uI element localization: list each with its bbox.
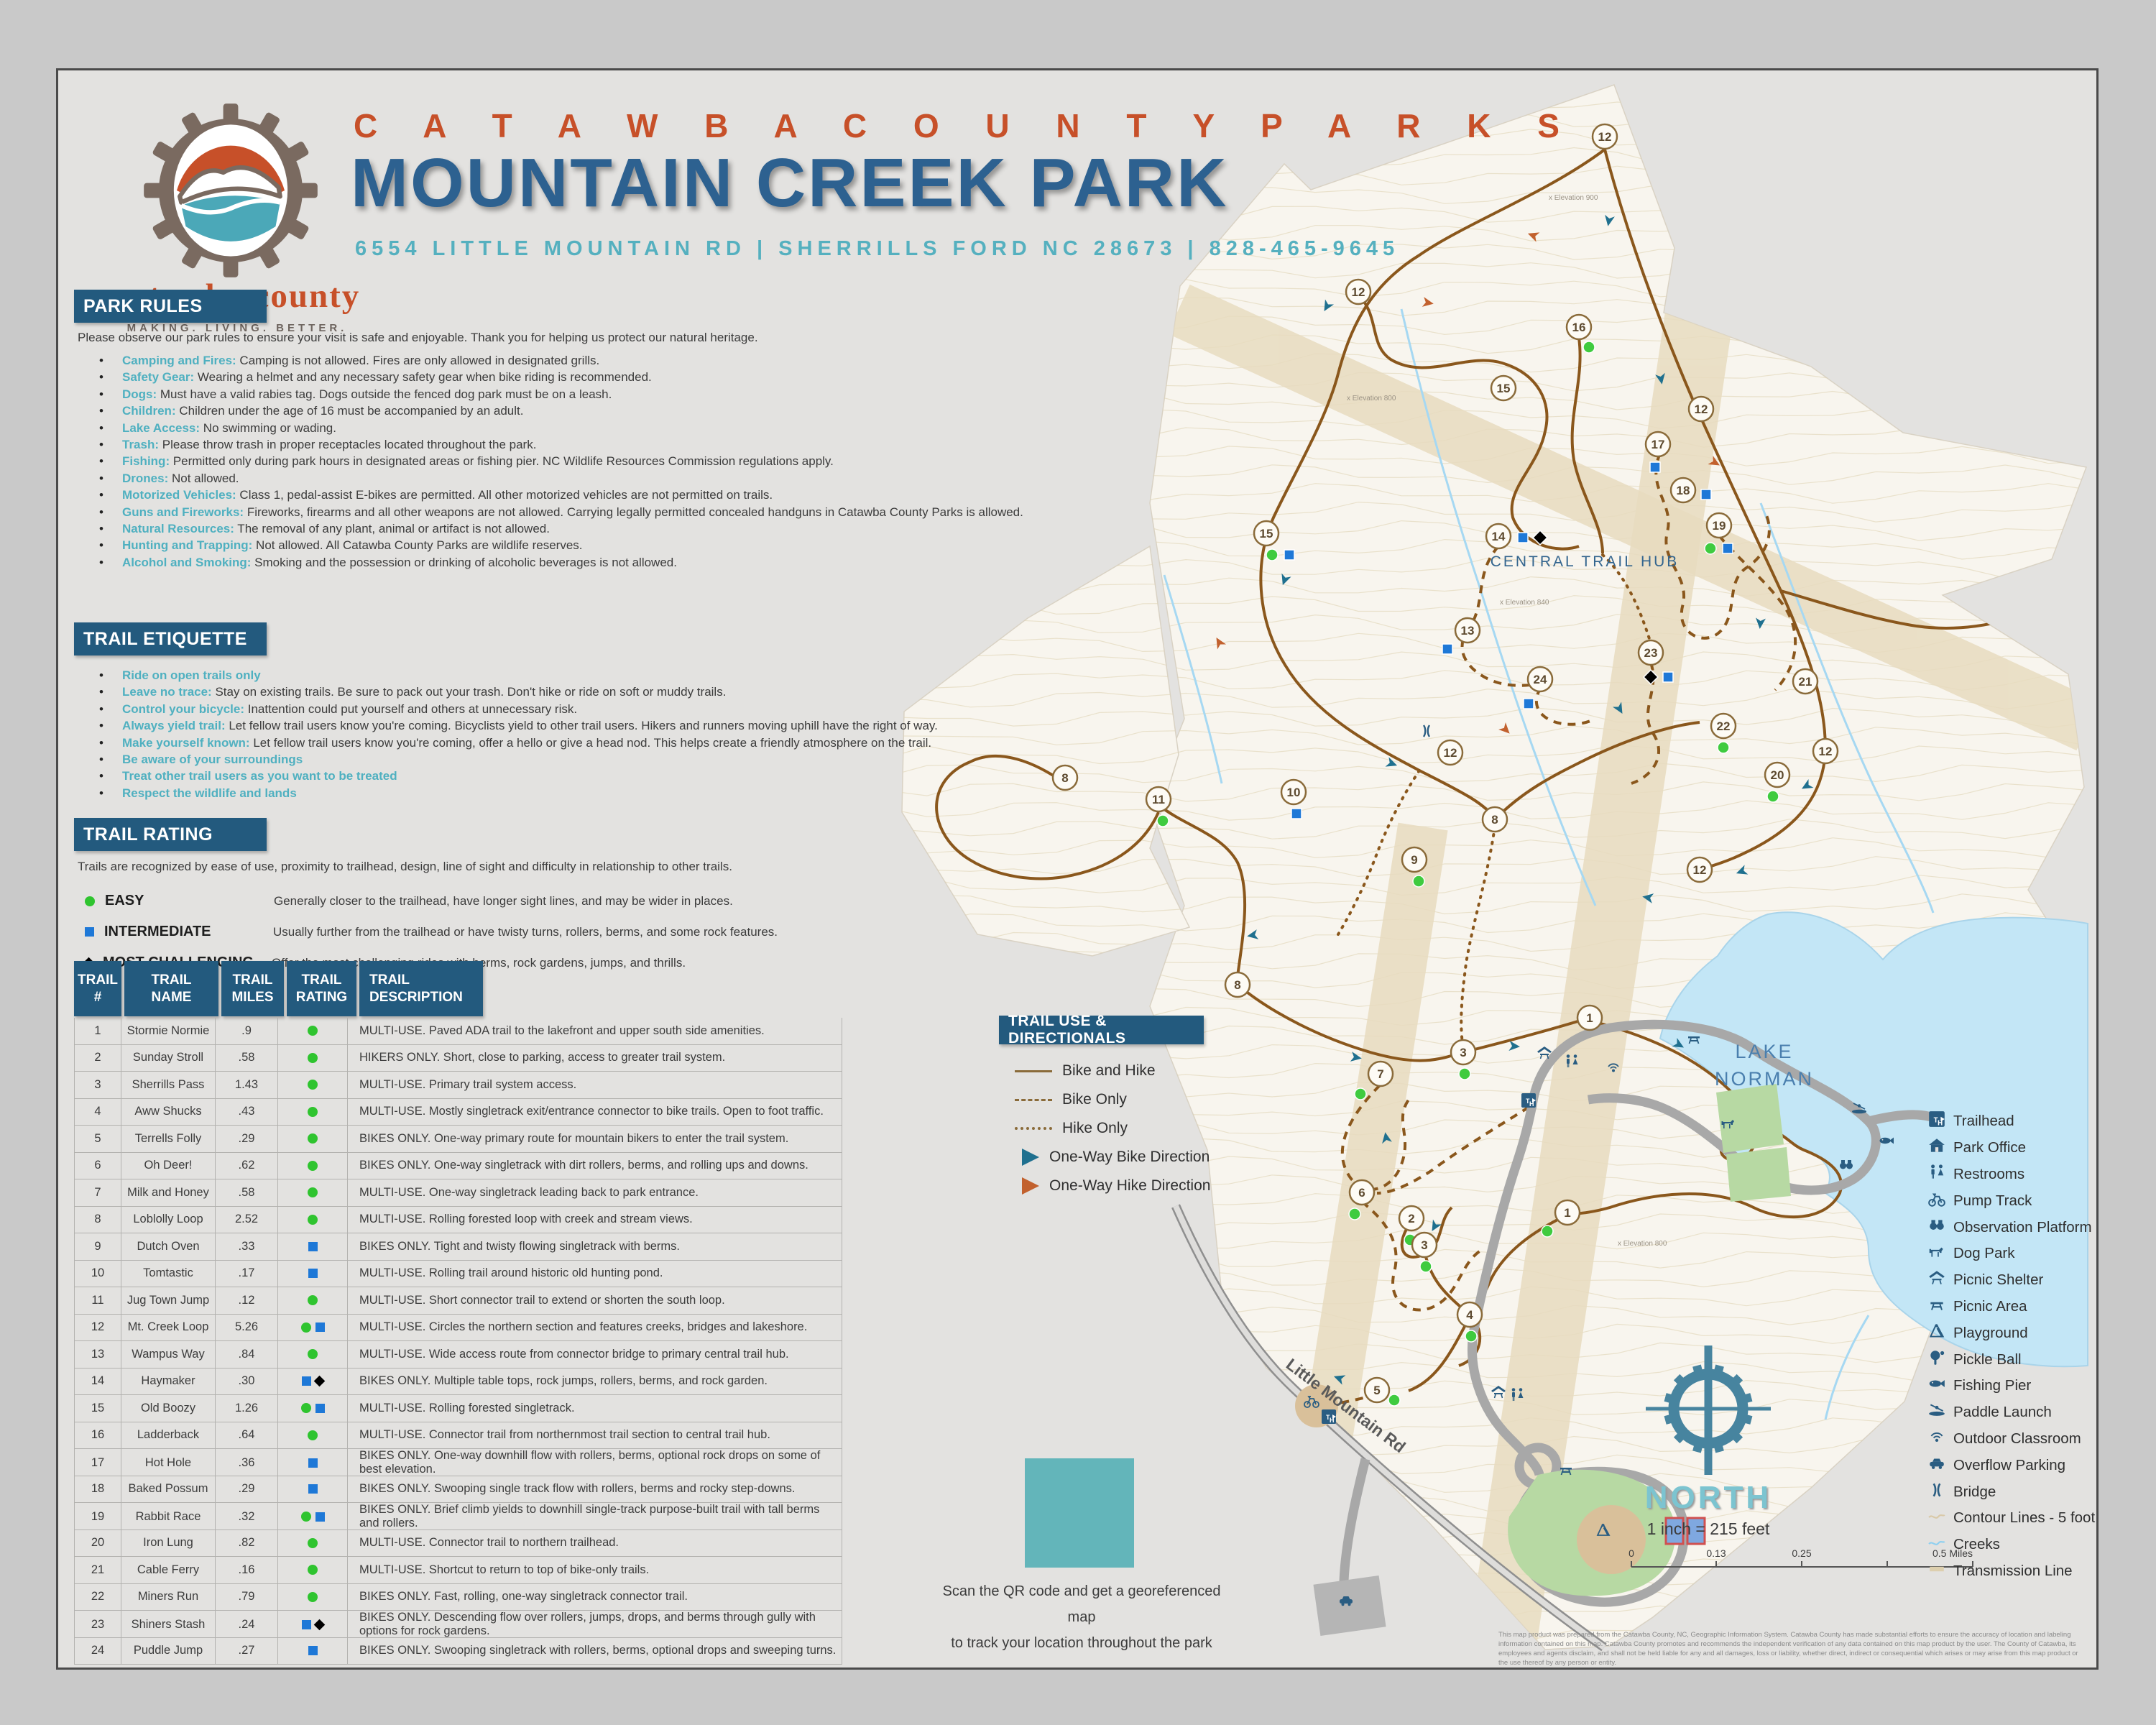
- cell-trail-description: HIKERS ONLY. Short, close to parking, ac…: [348, 1045, 842, 1072]
- trail-rating-header: TRAIL RATING: [74, 818, 267, 851]
- etiquette-item: Be aware of your surroundings: [78, 751, 983, 768]
- cell-trail-miles: .17: [216, 1261, 278, 1287]
- trail-marker-1: 1: [1577, 1006, 1602, 1030]
- poster-canvas: T HT HCENTRAL TRAIL HUBLAKENORMANLittle …: [0, 0, 2156, 1725]
- cell-trail-number: 23: [74, 1611, 121, 1638]
- cell-trail-miles: .24: [216, 1611, 278, 1638]
- cell-trail-rating: [278, 1584, 348, 1611]
- table-row: 9Dutch Oven.33BIKES ONLY. Tight and twis…: [74, 1233, 842, 1261]
- restrooms-icon: [1927, 1163, 1946, 1186]
- cell-trail-miles: .79: [216, 1584, 278, 1611]
- park-office-icon: [1927, 1136, 1946, 1159]
- dog-park-field: [1716, 1084, 1784, 1153]
- cell-trail-description: BIKES ONLY. One-way primary route for mo…: [348, 1126, 842, 1152]
- map-scale-text: 1 inch = 215 feet: [1647, 1519, 1770, 1538]
- trail-table-header: TRAIL#TRAILNAMETRAILMILESTRAILRATINGTRAI…: [74, 961, 483, 1016]
- cell-trail-miles: .84: [216, 1341, 278, 1368]
- cell-trail-description: MULTI-USE. Circles the northern section …: [348, 1315, 842, 1341]
- rule-item: Dogs: Must have a valid rabies tag. Dogs…: [78, 386, 983, 402]
- park-rules-intro: Please observe our park rules to ensure …: [78, 331, 969, 345]
- legend-label: Creeks: [1953, 1536, 2000, 1553]
- cell-trail-number: 12: [74, 1315, 121, 1341]
- table-row: 20Iron Lung.82MULTI-USE. Connector trail…: [74, 1530, 842, 1558]
- legend-label: Picnic Shelter: [1953, 1271, 2043, 1289]
- one-way-hike-arrow-icon: [1022, 1177, 1039, 1195]
- legend-item: T HTrailhead: [1927, 1108, 2100, 1135]
- cell-trail-miles: .16: [216, 1557, 278, 1583]
- cell-trail-miles: 2.52: [216, 1207, 278, 1233]
- table-row: 21Cable Ferry.16MULTI-USE. Shortcut to r…: [74, 1557, 842, 1584]
- trail-use-label: Hike Only: [1062, 1120, 1128, 1137]
- bike-only-line-icon: [1015, 1099, 1052, 1101]
- cell-trail-description: MULTI-USE. Mostly singletrack exit/entra…: [348, 1099, 842, 1126]
- cell-trail-rating: [278, 1530, 348, 1557]
- cell-trail-rating: [278, 1341, 348, 1368]
- cell-trail-number: 11: [74, 1287, 121, 1314]
- cell-trail-rating: [278, 1287, 348, 1314]
- rule-item-lead: Safety Gear:: [122, 370, 194, 384]
- svg-text:8: 8: [1061, 771, 1068, 785]
- etiquette-item: Respect the wildlife and lands: [78, 785, 983, 801]
- trail-marker-12: 12: [1593, 124, 1617, 149]
- legend-item: Transmission Line: [1927, 1558, 2100, 1585]
- legend-item: Overflow Parking: [1927, 1452, 2100, 1478]
- outdoor-classroom-icon: [1927, 1427, 1946, 1450]
- etiquette-item-text: Inattention could put yourself and other…: [244, 702, 577, 716]
- cell-trail-name: Shiners Stash: [121, 1611, 216, 1638]
- trail-marker-12: 12: [1346, 280, 1370, 304]
- etiquette-item: Always yield trail: Let fellow trail use…: [78, 717, 983, 734]
- table-header-cell: TRAILMILES: [221, 961, 284, 1016]
- cell-trail-miles: 1.26: [216, 1395, 278, 1422]
- table-row: 22Miners Run.79BIKES ONLY. Fast, rolling…: [74, 1584, 842, 1611]
- table-header-line2: RATING: [296, 989, 347, 1006]
- header-kicker: C A T A W B A C O U N T Y P A R K S: [354, 106, 1578, 145]
- svg-text:16: 16: [1572, 321, 1586, 334]
- cell-trail-description: MULTI-USE. Rolling forested singletrack.: [348, 1395, 842, 1422]
- svg-text:20: 20: [1771, 768, 1784, 782]
- svg-text:4: 4: [1466, 1308, 1473, 1322]
- cell-trail-number: 1: [74, 1018, 121, 1044]
- cell-trail-miles: .32: [216, 1503, 278, 1530]
- trail-use-item: Bike and Hike: [1015, 1057, 1252, 1085]
- legend-item: Restrooms: [1927, 1161, 2100, 1188]
- table-header-line1: TRAIL: [78, 972, 118, 989]
- trail-use-label: One-Way Bike Direction: [1049, 1149, 1210, 1166]
- trail-use-legend: Bike and HikeBike OnlyHike OnlyOne-Way B…: [1015, 1057, 1252, 1200]
- table-row: 23Shiners Stash.24BIKES ONLY. Descending…: [74, 1611, 842, 1638]
- cell-trail-description: BIKES ONLY. Descending flow over rollers…: [348, 1611, 842, 1638]
- rule-item: Hunting and Trapping: Not allowed. All C…: [78, 537, 983, 553]
- svg-text:0.25: 0.25: [1792, 1547, 1811, 1559]
- cell-trail-rating: [278, 1099, 348, 1126]
- elevation-label: x Elevation 900: [1549, 194, 1598, 202]
- svg-text:10: 10: [1287, 786, 1301, 799]
- svg-text:7: 7: [1377, 1067, 1383, 1081]
- rule-item-text: Not allowed.: [168, 471, 239, 485]
- trail-marker-12: 12: [1438, 740, 1462, 765]
- rule-item-lead: Camping and Fires:: [122, 354, 236, 367]
- cell-trail-number: 14: [74, 1368, 121, 1395]
- table-row: 13Wampus Way.84MULTI-USE. Wide access ro…: [74, 1341, 842, 1368]
- easy-dot-icon: [308, 1161, 318, 1171]
- qr-caption-line2: to track your location throughout the pa…: [951, 1635, 1212, 1651]
- trail-marker-21: 21: [1793, 669, 1818, 694]
- legend-label: Trailhead: [1953, 1113, 2014, 1130]
- svg-text:23: 23: [1644, 646, 1658, 660]
- qr-caption-line1: Scan the QR code and get a georeferenced…: [943, 1583, 1221, 1625]
- cell-trail-number: 17: [74, 1449, 121, 1476]
- cell-trail-description: MULTI-USE. Connector trail from northern…: [348, 1422, 842, 1449]
- rule-item-text: The removal of any plant, animal or arti…: [234, 522, 550, 535]
- cell-trail-description: BIKES ONLY. One-way singletrack with dir…: [348, 1153, 842, 1179]
- trail-rating-intro: Trails are recognized by ease of use, pr…: [78, 860, 969, 874]
- table-row: 1Stormie Normie.9MULTI-USE. Paved ADA tr…: [74, 1018, 842, 1045]
- rule-item: Camping and Fires: Camping is not allowe…: [78, 352, 983, 369]
- cell-trail-name: Haymaker: [121, 1368, 216, 1395]
- rule-item-text: Class 1, pedal-assist E-bikes are permit…: [236, 488, 773, 502]
- cell-trail-rating: [278, 1611, 348, 1638]
- easy-dot-icon: [308, 1565, 318, 1575]
- dog-park-icon: [1927, 1242, 1946, 1265]
- table-row: 17Hot Hole.36BIKES ONLY. One-way downhil…: [74, 1449, 842, 1476]
- cell-trail-description: MULTI-USE. Paved ADA trail to the lakefr…: [348, 1018, 842, 1044]
- svg-text:6: 6: [1358, 1186, 1365, 1200]
- table-row: 15Old Boozy1.26MULTI-USE. Rolling forest…: [74, 1395, 842, 1422]
- cell-trail-name: Mt. Creek Loop: [121, 1315, 216, 1341]
- legend-label: Paddle Launch: [1953, 1404, 2052, 1421]
- picnic-area-icon: [1927, 1295, 1946, 1318]
- overflow-parking-icon: [1927, 1454, 1946, 1477]
- cell-trail-rating: [278, 1261, 348, 1287]
- table-header-line1: TRAIL: [369, 972, 410, 989]
- hike-only-line-icon: [1015, 1127, 1052, 1130]
- svg-text:12: 12: [1598, 130, 1612, 144]
- easy-dot-icon: [308, 1592, 318, 1602]
- table-row: 5Terrells Folly.29BIKES ONLY. One-way pr…: [74, 1126, 842, 1153]
- cell-trail-miles: .58: [216, 1045, 278, 1072]
- cell-trail-number: 4: [74, 1099, 121, 1126]
- cell-trail-number: 7: [74, 1179, 121, 1206]
- qr-code: [1025, 1458, 1134, 1568]
- cell-trail-miles: .9: [216, 1018, 278, 1044]
- intermediate-square-icon: [315, 1322, 325, 1332]
- cell-trail-name: Loblolly Loop: [121, 1207, 216, 1233]
- cell-trail-name: Milk and Honey: [121, 1179, 216, 1206]
- rule-item-lead: Fishing:: [122, 454, 170, 468]
- easy-dot-icon: [308, 1538, 318, 1548]
- rule-item: Lake Access: No swimming or wading.: [78, 420, 983, 436]
- cell-trail-rating: [278, 1233, 348, 1260]
- trailhead-map-icon: T H: [1521, 1093, 1536, 1108]
- legend-item: Observation Platform: [1927, 1214, 2100, 1241]
- cell-trail-description: BIKES ONLY. Swooping single track flow w…: [348, 1476, 842, 1503]
- rule-item-text: Permitted only during park hours in desi…: [170, 454, 834, 468]
- cell-trail-miles: 1.43: [216, 1072, 278, 1098]
- easy-dot-icon: [301, 1322, 311, 1333]
- park-rules-list: Camping and Fires: Camping is not allowe…: [78, 352, 983, 571]
- rating-level-text: Usually further from the trailhead or ha…: [273, 925, 778, 939]
- intermediate-square-icon: [302, 1620, 311, 1629]
- cell-trail-number: 19: [74, 1503, 121, 1530]
- table-header-line1: TRAIL: [152, 972, 192, 989]
- etiquette-item-lead: Control your bicycle:: [122, 702, 244, 716]
- cell-trail-name: Puddle Jump: [121, 1638, 216, 1665]
- etiquette-item-lead: Respect the wildlife and lands: [122, 786, 297, 800]
- legend-item: Paddle Launch: [1927, 1399, 2100, 1426]
- cell-trail-name: Terrells Folly: [121, 1126, 216, 1152]
- trail-marker-15: 15: [1491, 376, 1516, 400]
- cell-trail-description: BIKES ONLY. Swooping singletrack with ro…: [348, 1638, 842, 1665]
- qr-caption: Scan the QR code and get a georeferenced…: [941, 1578, 1222, 1656]
- easy-dot-icon: [308, 1107, 318, 1117]
- pump-track-icon: [1927, 1190, 1946, 1213]
- challenging-diamond-icon: [314, 1376, 326, 1387]
- table-row: 10Tomtastic.17MULTI-USE. Rolling trail a…: [74, 1261, 842, 1288]
- easy-dot-icon: [308, 1053, 318, 1063]
- intermediate-square-icon: [308, 1484, 318, 1494]
- trail-marker-8: 8: [1053, 765, 1077, 790]
- cell-trail-rating: [278, 1422, 348, 1449]
- legend-label: Dog Park: [1953, 1245, 2014, 1262]
- legend-label: Pump Track: [1953, 1192, 2032, 1210]
- trail-use-item: Hike Only: [1015, 1114, 1252, 1143]
- rule-item-text: Must have a valid rabies tag. Dogs outsi…: [157, 387, 612, 401]
- etiquette-item-lead: Ride on open trails only: [122, 668, 261, 682]
- cell-trail-number: 16: [74, 1422, 121, 1449]
- rule-item-lead: Lake Access:: [122, 421, 200, 435]
- lake-norman-label: LAKE: [1735, 1041, 1793, 1062]
- fishing-pier-icon: [1927, 1374, 1946, 1397]
- playground-icon: [1927, 1322, 1946, 1345]
- cell-trail-rating: [278, 1638, 348, 1665]
- page-title: MOUNTAIN CREEK PARK: [351, 144, 1228, 223]
- svg-text:12: 12: [1819, 745, 1833, 758]
- svg-text:2: 2: [1408, 1212, 1414, 1225]
- etiquette-item-text: Let fellow trail users know you're comin…: [226, 719, 938, 732]
- legend-item: Park Office: [1927, 1135, 2100, 1161]
- trail-marker-12: 12: [1687, 857, 1712, 882]
- svg-text:9: 9: [1411, 853, 1417, 867]
- cell-trail-name: Wampus Way: [121, 1341, 216, 1368]
- central-trail-hub-label: CENTRAL TRAIL HUB: [1491, 553, 1680, 570]
- svg-text:18: 18: [1677, 484, 1690, 497]
- legend-item: Pump Track: [1927, 1187, 2100, 1214]
- easy-dot-icon: [308, 1133, 318, 1144]
- cell-trail-description: MULTI-USE. Connector trail to northern t…: [348, 1530, 842, 1557]
- svg-text:24: 24: [1534, 673, 1547, 686]
- cell-trail-number: 9: [74, 1233, 121, 1260]
- legend-label: Observation Platform: [1953, 1219, 2092, 1236]
- cell-trail-miles: .12: [216, 1287, 278, 1314]
- rule-item-lead: Natural Resources:: [122, 522, 234, 535]
- park-address: 6554 LITTLE MOUNTAIN RD | SHERRILLS FORD…: [355, 237, 1399, 261]
- easy-dot-icon: [301, 1512, 311, 1522]
- table-row: 6Oh Deer!.62BIKES ONLY. One-way singletr…: [74, 1153, 842, 1180]
- legend-item: Playground: [1927, 1320, 2100, 1346]
- trail-use-header: TRAIL USE & DIRECTIONALS: [999, 1016, 1204, 1044]
- cell-trail-number: 10: [74, 1261, 121, 1287]
- svg-text:15: 15: [1497, 382, 1511, 395]
- cell-trail-number: 6: [74, 1153, 121, 1179]
- cell-trail-number: 5: [74, 1126, 121, 1152]
- trail-marker-12: 12: [1813, 739, 1838, 763]
- svg-text:13: 13: [1461, 624, 1475, 638]
- etiquette-item-lead: Always yield trail:: [122, 719, 226, 732]
- rule-item-text: Fireworks, firearms and all other weapon…: [244, 505, 1023, 519]
- elevation-label: x Elevation 800: [1347, 395, 1396, 402]
- one-way-bike-arrow-icon: [1022, 1149, 1039, 1166]
- legend-label: Overflow Parking: [1953, 1457, 2065, 1474]
- table-row: 16Ladderback.64MULTI-USE. Connector trai…: [74, 1422, 842, 1450]
- table-row: 4Aww Shucks.43MULTI-USE. Mostly singletr…: [74, 1099, 842, 1126]
- legend-item: Outdoor Classroom: [1927, 1426, 2100, 1453]
- cell-trail-miles: .62: [216, 1153, 278, 1179]
- table-header-line1: TRAIL: [302, 972, 342, 989]
- cell-trail-rating: [278, 1072, 348, 1098]
- cell-trail-description: MULTI-USE. Short connector trail to exte…: [348, 1287, 842, 1314]
- rule-item-lead: Guns and Fireworks:: [122, 505, 244, 519]
- cell-trail-rating: [278, 1153, 348, 1179]
- cell-trail-description: MULTI-USE. One-way singletrack leading b…: [348, 1179, 842, 1206]
- table-row: 24Puddle Jump.27BIKES ONLY. Swooping sin…: [74, 1638, 842, 1665]
- etiquette-item-text: Stay on existing trails. Be sure to pack…: [212, 685, 727, 699]
- table-row: 19Rabbit Race.32BIKES ONLY. Brief climb …: [74, 1503, 842, 1530]
- table-row: 18Baked Possum.29BIKES ONLY. Swooping si…: [74, 1476, 842, 1504]
- elevation-label: x Elevation 840: [1500, 599, 1549, 607]
- rule-item-text: No swimming or wading.: [200, 421, 336, 435]
- cell-trail-rating: [278, 1557, 348, 1583]
- legend-label: Playground: [1953, 1325, 2028, 1342]
- easy-dot-icon: [308, 1430, 318, 1440]
- cell-trail-name: Sunday Stroll: [121, 1045, 216, 1072]
- rule-item: Alcohol and Smoking: Smoking and the pos…: [78, 554, 983, 571]
- contour-icon: [1927, 1506, 1946, 1529]
- cell-trail-name: Old Boozy: [121, 1395, 216, 1422]
- easy-dot-icon: [308, 1026, 318, 1036]
- cell-trail-name: Sherrills Pass: [121, 1072, 216, 1098]
- table-header-cell: TRAILRATING: [287, 961, 356, 1016]
- legend-label: Contour Lines - 5 foot: [1953, 1509, 2095, 1527]
- rule-item-lead: Children:: [122, 404, 176, 418]
- cell-trail-name: Iron Lung: [121, 1530, 216, 1557]
- rule-item-text: Camping is not allowed. Fires are only a…: [236, 354, 600, 367]
- intermediate-square-icon: [308, 1242, 318, 1251]
- catawba-county-logo: [141, 101, 328, 280]
- etiquette-item-lead: Treat other trail users as you want to b…: [122, 769, 397, 783]
- table-row: 11Jug Town Jump.12MULTI-USE. Short conne…: [74, 1287, 842, 1315]
- cell-trail-rating: [278, 1368, 348, 1395]
- rule-item-lead: Drones:: [122, 471, 168, 485]
- challenging-diamond-icon: [314, 1619, 326, 1630]
- cell-trail-rating: [278, 1179, 348, 1206]
- svg-text:12: 12: [1695, 402, 1708, 416]
- rule-item-text: Children under the age of 16 must be acc…: [176, 404, 524, 418]
- picnic-shelter-icon: [1927, 1269, 1946, 1292]
- rule-item-lead: Hunting and Trapping:: [122, 538, 252, 552]
- svg-text:12: 12: [1444, 746, 1457, 760]
- trail-marker-8: 8: [1483, 807, 1507, 832]
- rule-item: Children: Children under the age of 16 m…: [78, 402, 983, 419]
- rule-item: Natural Resources: The removal of any pl…: [78, 520, 983, 537]
- pickle-ball-icon: [1927, 1348, 1946, 1371]
- legend-item: Creeks: [1927, 1532, 2100, 1558]
- rule-item-text: Smoking and the possession or drinking o…: [251, 556, 677, 569]
- rating-level-label: EASY: [105, 893, 274, 909]
- cell-trail-description: MULTI-USE. Primary trail system access.: [348, 1072, 842, 1098]
- table-row: 3Sherrills Pass1.43MULTI-USE. Primary tr…: [74, 1072, 842, 1099]
- rule-item: Safety Gear: Wearing a helmet and any ne…: [78, 369, 983, 385]
- etiquette-item-lead: Be aware of your surroundings: [122, 753, 303, 766]
- etiquette-item: Control your bicycle: Inattention could …: [78, 701, 983, 717]
- trail-etiquette-header: TRAIL ETIQUETTE: [74, 622, 267, 655]
- trail-use-item: One-Way Hike Direction: [1015, 1172, 1252, 1200]
- easy-dot-icon: [308, 1187, 318, 1197]
- etiquette-item: Treat other trail users as you want to b…: [78, 768, 983, 784]
- rule-item-lead: Motorized Vehicles:: [122, 488, 236, 502]
- cell-trail-description: BIKES ONLY. Multiple table tops, rock ju…: [348, 1368, 842, 1395]
- cell-trail-rating: [278, 1126, 348, 1152]
- easy-dot-icon: [308, 1295, 318, 1305]
- rating-level-text: Generally closer to the trailhead, have …: [274, 894, 733, 908]
- svg-text:1: 1: [1564, 1206, 1570, 1220]
- rating-level-label: INTERMEDIATE: [104, 924, 273, 940]
- cell-trail-rating: [278, 1395, 348, 1422]
- intermediate-square-icon: [308, 1458, 318, 1468]
- table-header-line2: #: [94, 989, 102, 1006]
- bike-and-hike-line-icon: [1015, 1070, 1052, 1072]
- svg-text:5: 5: [1373, 1384, 1380, 1397]
- rule-item: Fishing: Permitted only during park hour…: [78, 453, 983, 469]
- table-header-line2: NAME: [152, 989, 192, 1006]
- cell-trail-number: 15: [74, 1395, 121, 1422]
- etiquette-item: Leave no trace: Stay on existing trails.…: [78, 684, 983, 700]
- trailhead-map-icon: T H: [1322, 1409, 1336, 1424]
- table-header-cell: TRAILNAME: [124, 961, 218, 1016]
- cell-trail-name: Aww Shucks: [121, 1099, 216, 1126]
- cell-trail-miles: .58: [216, 1179, 278, 1206]
- rule-item: Drones: Not allowed.: [78, 470, 983, 487]
- table-header-line1: TRAIL: [233, 972, 273, 989]
- trail-use-item: One-Way Bike Direction: [1015, 1143, 1252, 1172]
- cell-trail-rating: [278, 1045, 348, 1072]
- cell-trail-miles: .82: [216, 1530, 278, 1557]
- cell-trail-rating: [278, 1018, 348, 1044]
- cell-trail-name: Rabbit Race: [121, 1503, 216, 1530]
- svg-text:1: 1: [1586, 1011, 1593, 1025]
- svg-text:12: 12: [1352, 285, 1365, 299]
- park-road: [1344, 1459, 1365, 1581]
- svg-text:11: 11: [1152, 793, 1165, 806]
- cell-trail-number: 3: [74, 1072, 121, 1098]
- legend-label: Fishing Pier: [1953, 1377, 2031, 1394]
- cell-trail-number: 20: [74, 1530, 121, 1557]
- intermediate-square-icon: [315, 1512, 325, 1522]
- cell-trail-miles: .27: [216, 1638, 278, 1665]
- cell-trail-number: 21: [74, 1557, 121, 1583]
- bridge-icon: [1927, 1481, 1946, 1504]
- elevation-label: x Elevation 800: [1618, 1240, 1667, 1248]
- intermediate-square-icon: [85, 927, 94, 937]
- cell-trail-number: 13: [74, 1341, 121, 1368]
- rule-item: Motorized Vehicles: Class 1, pedal-assis…: [78, 487, 983, 503]
- cell-trail-name: Stormie Normie: [121, 1018, 216, 1044]
- svg-text:H: H: [1938, 1120, 1943, 1128]
- cell-trail-name: Miners Run: [121, 1584, 216, 1611]
- cell-trail-number: 18: [74, 1476, 121, 1503]
- trail-use-label: One-Way Hike Direction: [1049, 1177, 1210, 1195]
- intermediate-square-icon: [302, 1376, 311, 1386]
